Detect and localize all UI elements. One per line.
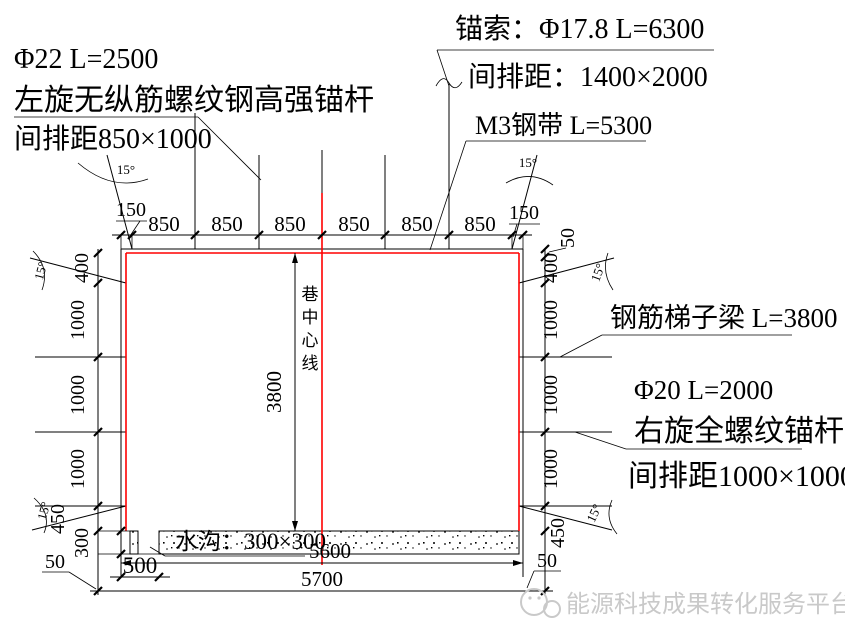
leader-line (560, 335, 602, 357)
center-line-label: 巷 中 心 线 (302, 285, 319, 373)
dim-1000-right: 1000 (540, 449, 562, 489)
angle-label: 15° (519, 155, 537, 170)
dim-450-right: 450 (547, 518, 569, 548)
dim-400-left: 400 (71, 253, 93, 283)
dim-1000-left: 1000 (67, 300, 89, 340)
dim-1000-right: 1000 (540, 300, 562, 340)
dim-400-right: 400 (540, 253, 562, 283)
right-wall-bolts (519, 258, 614, 530)
dim-1000-right: 1000 (540, 375, 562, 415)
leader-line (575, 432, 626, 449)
svg-text:线: 线 (302, 354, 319, 373)
leader-line (430, 141, 466, 250)
dim-850: 850 (338, 212, 370, 236)
wall-bolt-spacing-label: 间排距1000×1000 (628, 460, 845, 493)
wall-bolt-type-label: 右旋全螺纹锚杆 (634, 415, 844, 448)
dim-150-left: 150 (116, 199, 146, 221)
height-dimension: 3800 (262, 253, 298, 531)
ditch-wall (130, 531, 138, 554)
dim-850: 850 (464, 212, 496, 236)
dim-300-left: 300 (71, 528, 93, 558)
dim-850: 850 (211, 212, 243, 236)
leader-line (437, 50, 449, 86)
right-dimension-column: 50 400 1000 1000 1000 450 (540, 228, 579, 595)
roadway-support-section-drawing: 150 850 850 850 850 850 850 150 400 1000… (0, 0, 845, 641)
dim-500: 500 (123, 553, 158, 578)
drawing-canvas: 150 850 850 850 850 850 850 150 400 1000… (0, 0, 845, 641)
dim-150-right: 150 (509, 202, 539, 224)
watermark: 能源科技成果转化服务平台 (521, 589, 845, 618)
left-dimension-column: 400 1000 1000 1000 450 300 (47, 249, 130, 595)
watermark-text: 能源科技成果转化服务平台 (566, 591, 845, 618)
svg-text:中: 中 (302, 308, 319, 327)
dim-50-right-top: 50 (557, 228, 579, 248)
ladder-beam-label: 钢筋梯子梁 L=3800 (610, 303, 837, 333)
angle-label: 15° (31, 260, 50, 281)
dim-50-bottom-right: 50 (537, 550, 557, 572)
ditch-label-group: 水沟：300×300 (150, 529, 326, 556)
angle-label: 15° (583, 502, 604, 525)
cable-spacing-label: 间排距：1400×2000 (468, 61, 708, 93)
bolt-type-label: 左旋无纵筋螺纹钢高强锚杆 (14, 84, 374, 117)
annotation-top-left: Φ22 L=2500 左旋无纵筋螺纹钢高强锚杆 间排距850×1000 (14, 44, 374, 180)
watermark-logo-icon (521, 589, 547, 615)
svg-text:巷: 巷 (302, 285, 319, 304)
cable-spec-label: 锚索：Φ17.8 L=6300 (455, 13, 704, 45)
ditch-label: 水沟：300×300 (175, 529, 326, 554)
dim-850: 850 (274, 212, 306, 236)
top-dimension-line: 150 850 850 850 850 850 850 150 (112, 199, 540, 249)
angle-label: 15° (117, 162, 135, 177)
svg-text:心: 心 (302, 331, 319, 350)
dim-50-bottom-left: 50 (45, 551, 65, 573)
dim-3800: 3800 (262, 371, 286, 413)
angle-label: 15° (588, 261, 608, 283)
annotation-right: 钢筋梯子梁 L=3800 Φ20 L=2000 右旋全螺纹锚杆 间排距1000×… (560, 303, 845, 493)
dim-850: 850 (148, 212, 180, 236)
bolt-spec-label: Φ22 L=2500 (14, 44, 158, 75)
dim-1000-left: 1000 (67, 449, 89, 489)
wall-bolt-spec-label: Φ20 L=2000 (634, 375, 773, 405)
bolt-spacing-label: 间排距850×1000 (14, 123, 212, 155)
dim-5700: 5700 (301, 567, 343, 591)
dim-850: 850 (401, 212, 433, 236)
steel-band-label: M3钢带 L=5300 (475, 111, 652, 140)
dim-1000-left: 1000 (67, 375, 89, 415)
